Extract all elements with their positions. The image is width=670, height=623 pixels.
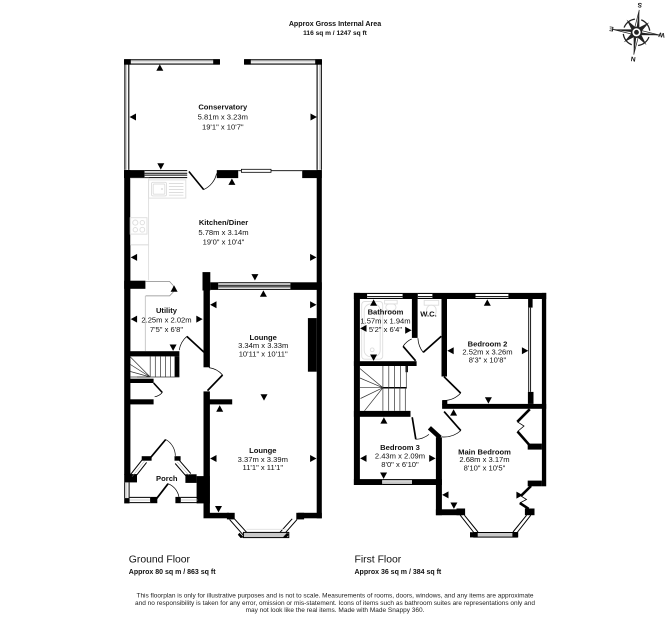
svg-text:First Floor: First Floor bbox=[355, 555, 402, 566]
svg-text:7'5" x 6'8": 7'5" x 6'8" bbox=[150, 325, 184, 334]
svg-text:N: N bbox=[630, 55, 636, 63]
svg-text:5'2" x 6'4": 5'2" x 6'4" bbox=[369, 325, 403, 334]
svg-text:8'3" x 10'8": 8'3" x 10'8" bbox=[469, 355, 507, 364]
svg-text:Ground Floor: Ground Floor bbox=[129, 555, 191, 566]
svg-text:Porch: Porch bbox=[156, 474, 178, 483]
svg-text:Bathroom: Bathroom bbox=[368, 307, 404, 316]
svg-text:11'1" x 11'1": 11'1" x 11'1" bbox=[243, 463, 284, 472]
svg-text:may not look like the real ite: may not look like the real items. Made w… bbox=[246, 607, 425, 614]
svg-text:10'11" x 10'11": 10'11" x 10'11" bbox=[239, 349, 288, 358]
svg-text:S: S bbox=[637, 1, 643, 9]
svg-text:2.25m x 2.02m: 2.25m x 2.02m bbox=[141, 316, 191, 325]
svg-text:Kitchen/Diner: Kitchen/Diner bbox=[199, 218, 248, 227]
svg-text:19'1" x 10'7": 19'1" x 10'7" bbox=[202, 123, 244, 132]
svg-text:Bedroom 3: Bedroom 3 bbox=[380, 443, 420, 452]
svg-text:W: W bbox=[657, 30, 665, 38]
svg-text:8'10" x 10'5": 8'10" x 10'5" bbox=[464, 464, 506, 473]
svg-text:8'0" x 6'10": 8'0" x 6'10" bbox=[381, 460, 419, 469]
svg-text:E: E bbox=[608, 24, 614, 32]
svg-text:Lounge: Lounge bbox=[249, 446, 276, 455]
svg-text:Approx 80 sq m / 863 sq ft: Approx 80 sq m / 863 sq ft bbox=[129, 569, 216, 576]
svg-text:and no responsibility is taken: and no responsibility is taken for any e… bbox=[135, 600, 535, 607]
svg-text:Approx Gross Internal Area: Approx Gross Internal Area bbox=[289, 20, 381, 28]
svg-text:19'0" x 10'4": 19'0" x 10'4" bbox=[203, 238, 245, 247]
svg-text:5.78m x 3.14m: 5.78m x 3.14m bbox=[198, 228, 248, 237]
svg-text:This floorplan is only for ill: This floorplan is only for illustrative … bbox=[136, 592, 533, 599]
svg-text:W.C.: W.C. bbox=[420, 310, 436, 319]
svg-text:Utility: Utility bbox=[156, 306, 178, 315]
svg-text:116 sq m / 1247 sq ft: 116 sq m / 1247 sq ft bbox=[303, 30, 368, 37]
svg-text:5.81m x 3.23m: 5.81m x 3.23m bbox=[198, 113, 248, 122]
svg-text:Approx 36 sq m / 384 sq ft: Approx 36 sq m / 384 sq ft bbox=[355, 569, 442, 576]
svg-text:Conservatory: Conservatory bbox=[198, 103, 248, 112]
